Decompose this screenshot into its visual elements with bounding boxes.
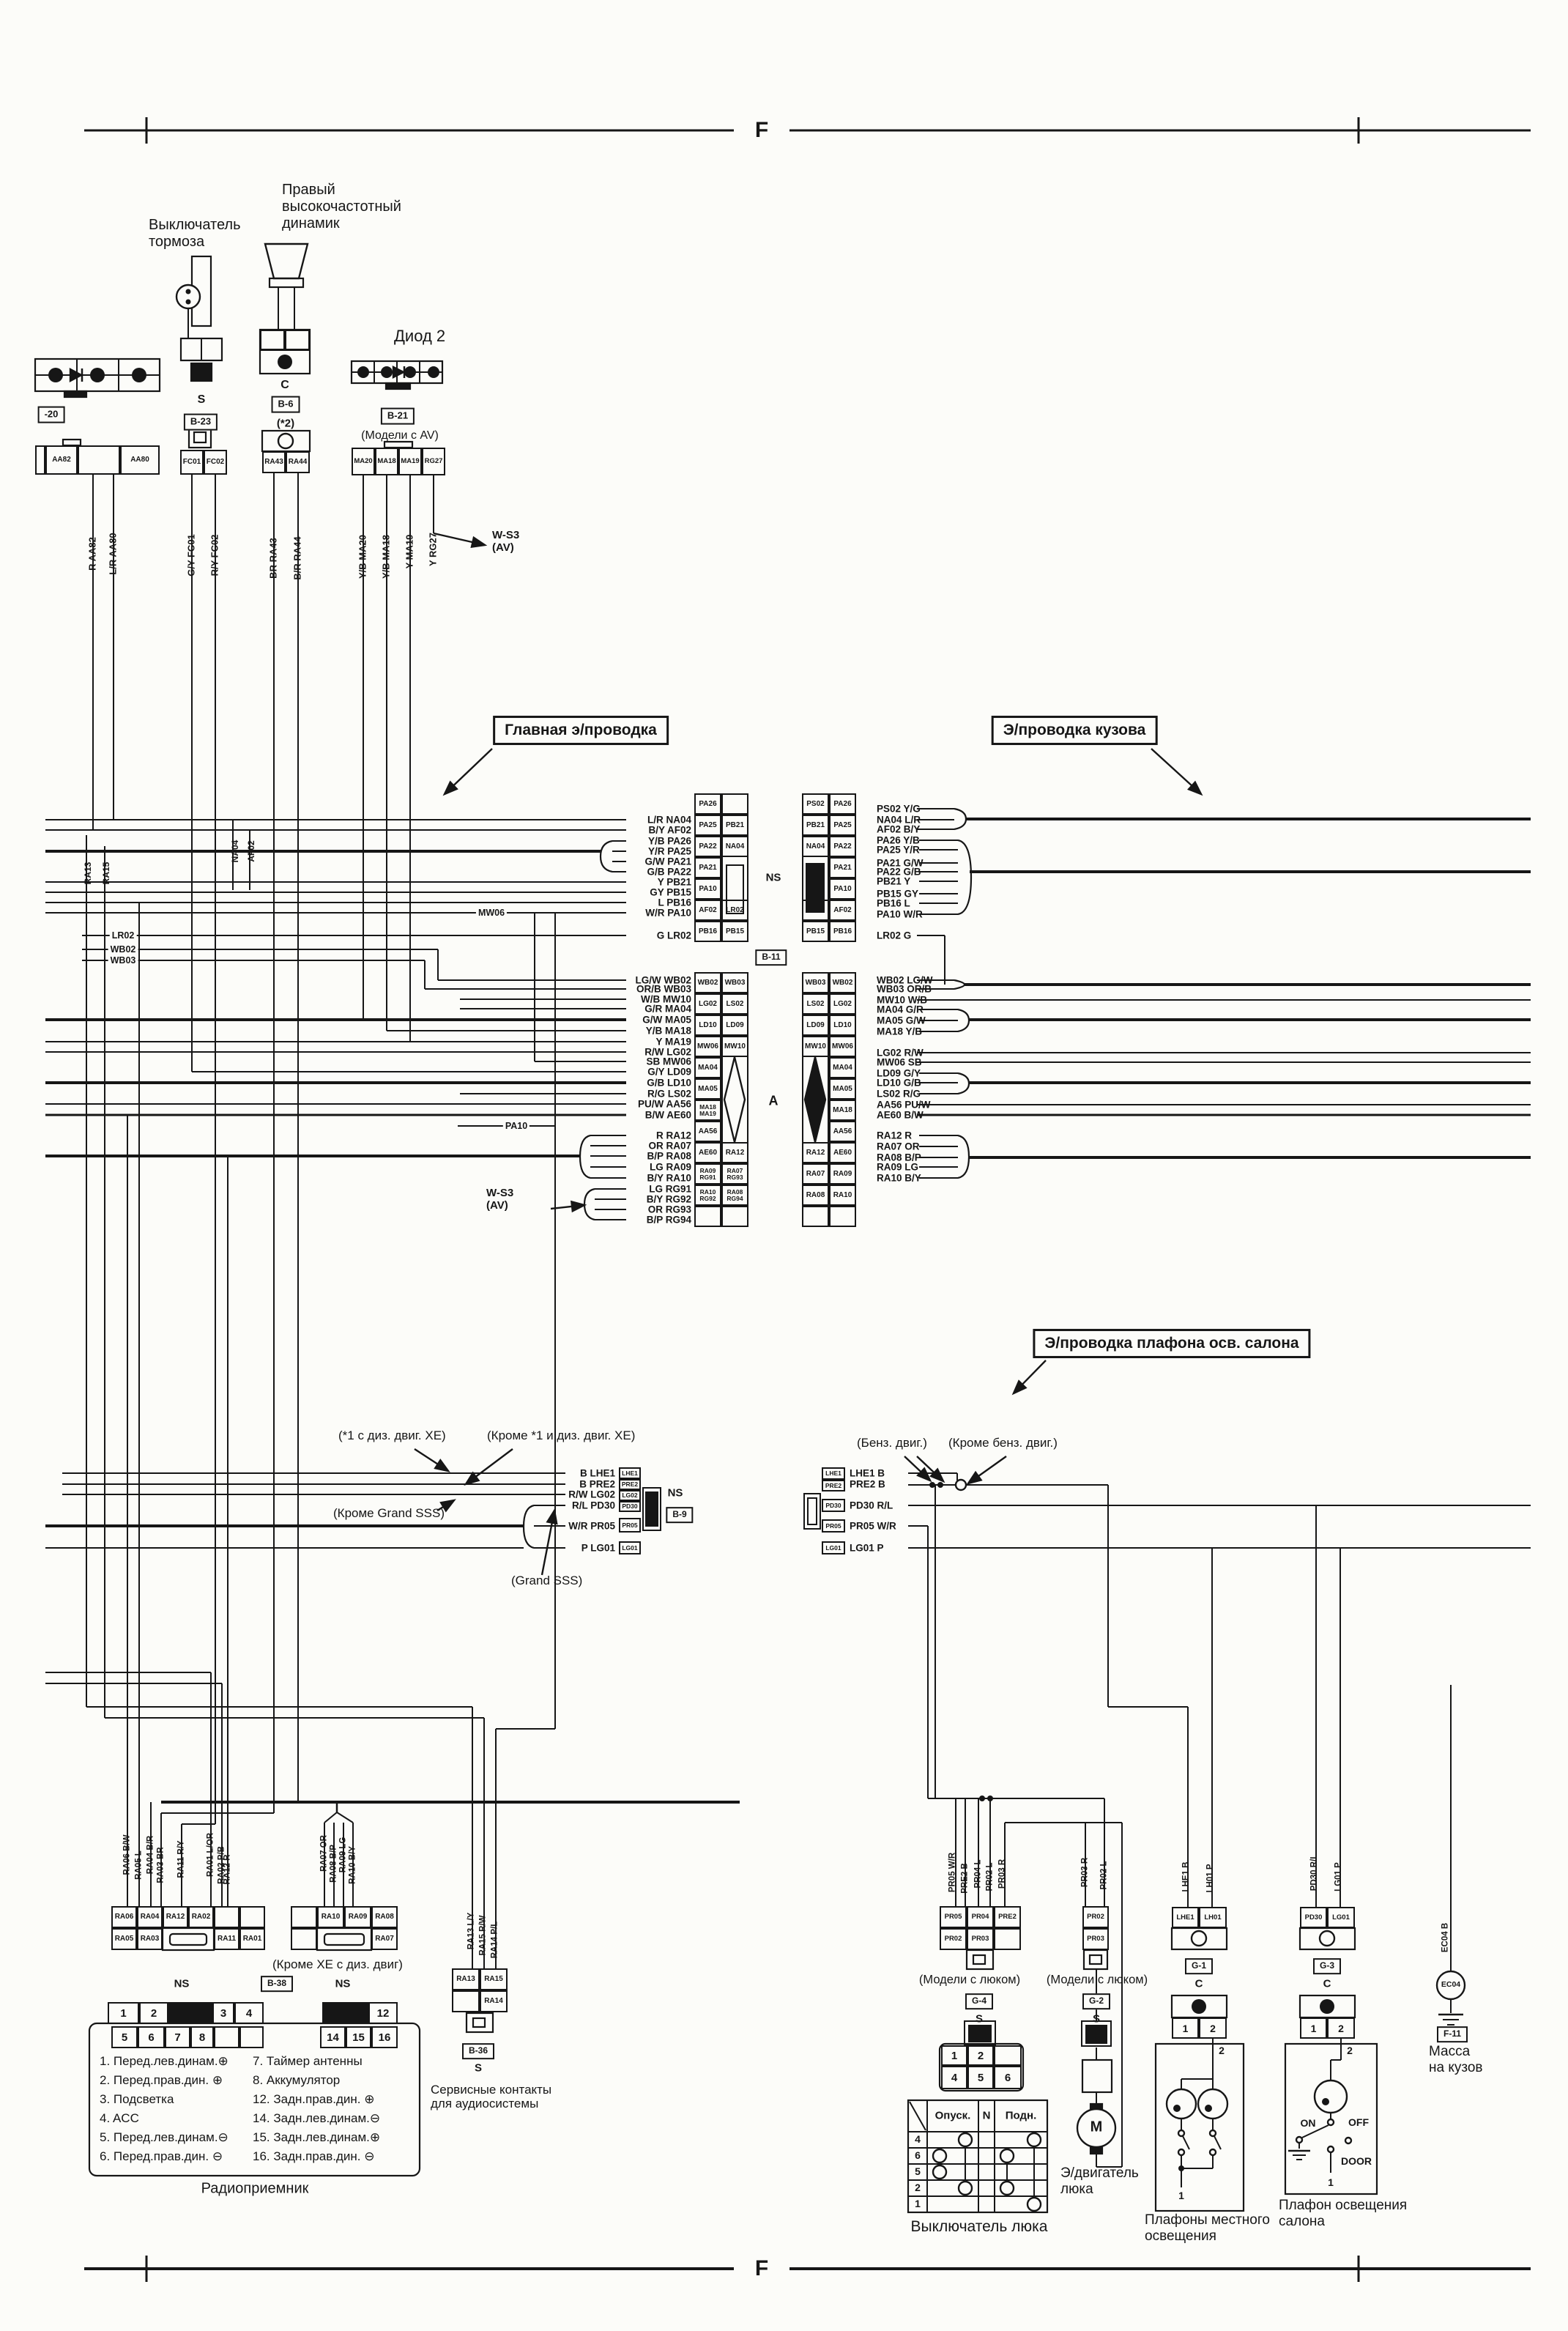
cell-main-grid_left_mid-0-1: WB03 (721, 972, 748, 993)
label-main-right_mid-1: WB03 OR/B (877, 983, 932, 994)
label-map_lamps-id: G-1 (1185, 1958, 1213, 1974)
cell-top-brake_switch-cells-1: FC02 (204, 450, 227, 475)
label-dome-left_list-5: P LG01 (410, 1542, 615, 1553)
cell-radio-conn_left_r1-1: RA04 (137, 1906, 163, 1928)
label-main-g_lr02: G LR02 (486, 930, 691, 941)
cell-radio-pins_r2-3: 8 (190, 2026, 214, 2048)
label-main-edge_labels-2: WB03 (108, 955, 138, 966)
cell-radio-conn_left_r1-5 (239, 1906, 265, 1928)
cell-main-grid_left_mid-0-0: WB02 (694, 972, 721, 993)
cell-dome-left_strip-5: LG01 (619, 1541, 641, 1554)
cell-blank (452, 1990, 480, 2012)
label-main-right_mid-12: AE60 B/W (877, 1109, 924, 1120)
label-radio-wires_left-0: RA06 B/W (122, 1835, 132, 1875)
label-map_lamps-c: C (1195, 1977, 1203, 1990)
cell-main-grid_right_top-0-0: PS02 (802, 793, 829, 815)
cell-dome-left_strip-2: LG02 (619, 1490, 641, 1501)
cell-main-grid_left_top-1-0: PA25 (694, 815, 721, 836)
wiring-diagram-page: Выключатель тормозаSB-23Правый высокочас… (0, 0, 1568, 2331)
label-main-ws3: W-S3 (AV) (486, 1187, 513, 1212)
label-radio-legend_col2-1: 8. Аккумулятор (253, 2073, 340, 2087)
label-radio-legend_col1-4: 5. Перед.лев.динам.⊖ (100, 2130, 228, 2144)
label-main-edge_labels-1: WB02 (108, 944, 138, 955)
label-top-brake_switch-pin: S (198, 393, 206, 407)
cell-main-grid_right_mid-1-0: LS02 (802, 993, 829, 1015)
connector-key-filled (806, 863, 825, 913)
label-main-left_mid-10: G/B LD10 (486, 1077, 691, 1088)
label-map_lamps-wires-0: LHE1 B (1181, 1862, 1191, 1892)
cell-radio-conn_left_r1-4 (214, 1906, 239, 1928)
label-map_lamps-wires-1: LH01 P (1205, 1864, 1215, 1893)
label-main-ns: NS (766, 871, 781, 883)
label-dome-notes-n4: (Grand SSS) (511, 1574, 582, 1587)
cell-radio-conn_left_r2-0: RA05 (111, 1928, 137, 1950)
label-radio-wires_left-4: RA11 R/Y (177, 1840, 186, 1878)
cell-main-grid_right_top-4-1: PA10 (829, 878, 856, 900)
label-top-diode2-wires-1: Y/B MA18 (382, 535, 393, 579)
cell-top-diode2-cells-3: RG27 (422, 448, 445, 475)
label-dome_lamp-on: ON (1301, 2118, 1316, 2130)
cell-sunroof_switch-pins_r2-0: 4 (941, 2066, 967, 2089)
cell-dome-right_strip-3: PR05 (822, 1519, 845, 1533)
label-top-brake_switch-title: Выключатель тормоза (149, 217, 241, 251)
label-main-right_mid-7: MW06 SB (877, 1056, 922, 1067)
label-radio-wires_left-7: RA12 R (223, 1855, 232, 1885)
label-map_lamps-caption: Плафоны местного освещения (1145, 2212, 1270, 2244)
label-main-right_ra-3: RA09 LG (877, 1161, 918, 1172)
cell-sunroof_switch-conn_r1-0: PR05 (940, 1906, 967, 1928)
cell-radio-pins_r2b-1: 15 (346, 2026, 371, 2048)
label-main-riser_labels-1: AF02 (247, 840, 257, 861)
label-main-left_rg-3: B/P RG94 (486, 1214, 691, 1225)
label-main-right_ra-0: RA12 R (877, 1130, 912, 1141)
label-main-right_ra-1: RA07 OR (877, 1141, 920, 1152)
cell-sunroof_switch-conn_r2-0: PR02 (940, 1928, 967, 1950)
label-radio-legend_col2-3: 14. Задн.лев.динам.⊖ (253, 2111, 380, 2125)
cell-main-grid_right_top-1-1: PA25 (829, 815, 856, 836)
cell-main-grid_left_mid-6-0: MA18 MA19 (694, 1100, 721, 1121)
cell-main-grid_left_mid-7-0: AA56 (694, 1121, 721, 1142)
cell-dome_lamp-pins-0: 1 (1300, 2017, 1327, 2039)
label-main-right_top-7: PB21 Y (877, 875, 910, 886)
label-sunroof_motor-id: G-2 (1082, 1993, 1110, 2009)
label-sunroof_motor-caption: Э/двигатель люка (1060, 2165, 1139, 2197)
cell-main-grid_right_top-2-1: PA22 (829, 836, 856, 857)
cell-main-grid_right_top-2-0: NA04 (802, 836, 829, 857)
cell-radio-conn_right_r2-0: RA07 (371, 1928, 398, 1950)
label-top-tweeter-wires-0: BR RA43 (269, 538, 280, 579)
cell-main-grid_right_mid-0-1: WB02 (829, 972, 856, 993)
cell-radio-conn_right_r1-1: RA09 (344, 1906, 371, 1928)
label-main-right_top-10: PA10 W/R (877, 908, 923, 919)
cell-sunroof_switch-conn_r1-1: PR04 (967, 1906, 994, 1928)
cell-main-grid_right_mid-1-1: LG02 (829, 993, 856, 1015)
label-dome-ns: NS (668, 1486, 683, 1499)
cell-main-grid_right_mid-4-0 (802, 1057, 829, 1078)
cell-main-grid_left_mid-2-0: LD10 (694, 1015, 721, 1036)
cell-main-grid_right_top-3-1: PA21 (829, 857, 856, 878)
cell-dome_lamp-cells-0: PD30 (1300, 1907, 1327, 1928)
cell-main-grid_right_top-6-1: PB16 (829, 921, 856, 942)
connector-key-filled (968, 2025, 992, 2042)
label-radio-caption: Радиоприемник (201, 2181, 309, 2198)
label-sunroof_switch-tbl_rows-1: 6 (915, 2150, 921, 2162)
label-dome_lamp-caption: Плафон освещения салона (1279, 2198, 1407, 2229)
label-main-edge_labels-0: LR02 (110, 930, 137, 941)
cell-main-grid_right_top-0-1: PA26 (829, 793, 856, 815)
label-top-edge-conn_id: -20 (38, 407, 65, 423)
label-main-right_mid-9: LD10 G/B (877, 1077, 921, 1088)
cell-blank (994, 2045, 1022, 2066)
connector-key-outline (726, 864, 744, 914)
label-main-right_mid-5: MA18 Y/B (877, 1026, 922, 1037)
label-map_lamps-p2: 2 (1219, 2045, 1225, 2057)
label-top-edge-wires-0: R AA82 (88, 537, 99, 571)
label-main-right_mid-3: MA04 G/R (877, 1004, 924, 1015)
label-radio-legend_col1-0: 1. Перед.лев.динам.⊕ (100, 2054, 228, 2068)
cell-sunroof_switch-pins_r2-1: 5 (967, 2066, 994, 2089)
cell-blank (214, 2026, 239, 2048)
cell-radio-conn_left_r1-2: RA12 (163, 1906, 188, 1928)
cell-main-grid_right_mid-10-1: RA10 (829, 1185, 856, 1206)
cell-radio-pins_r2-1: 6 (138, 2026, 165, 2048)
label-radio-wires_right-0: RA07 OR (319, 1835, 329, 1872)
cell-blank (291, 1906, 317, 1928)
connector-key-filled (1085, 2025, 1107, 2044)
label-radio-legend_col2-0: 7. Таймер антенны (253, 2054, 363, 2068)
cell-main-grid_left_mid-1-0: LG02 (694, 993, 721, 1015)
cell-main-grid_left_top-6-1: PB15 (721, 921, 748, 942)
cell-map_lamps-pins-0: 1 (1172, 2017, 1199, 2039)
cell-main-grid_right_mid-7-1: AA56 (829, 1121, 856, 1142)
cell-sunroof_switch-conn_r2-1: PR03 (967, 1928, 994, 1950)
cell-radio-pins_r1-2: 3 (212, 2002, 234, 2024)
label-radio-legend_col2-5: 16. Задн.прав.дин. ⊖ (253, 2149, 374, 2163)
cell-main-grid_left_mid-3-1: MW10 (721, 1036, 748, 1057)
label-radio-wires_left-3: RA03 BR (156, 1847, 166, 1883)
label-radio-wires_right-1: RA08 B/P (329, 1845, 338, 1883)
label-radio-legend_col2-2: 12. Задн.прав.дин. ⊕ (253, 2092, 374, 2106)
label-sunroof_motor-wires-0: PR03 R (1080, 1858, 1090, 1887)
label-dome-notes-n6: (Кроме бенз. двиг.) (948, 1436, 1058, 1450)
label-main-left_ra-3: LG RA09 (486, 1161, 691, 1172)
cell-blank (721, 1206, 748, 1227)
cell-service-cells_r1-1: RA15 (480, 1968, 508, 1990)
label-main-riser_labels-2: RA13 (83, 862, 94, 885)
label-sunroof_switch-caption: Выключатель люка (911, 2218, 1048, 2236)
cell-sunroof_switch-pins_r1-1: 2 (967, 2045, 994, 2066)
label-top-diode2-note: (Модели с AV) (361, 429, 439, 442)
cell-top-diode2-cells-0: MA20 (352, 448, 375, 475)
cell-top-edge-cells-0: AA82 (45, 445, 78, 475)
label-main-left_ra-4: B/Y RA10 (486, 1172, 691, 1183)
label-main-riser_labels-0: NA04 (231, 840, 241, 863)
cell-main-grid_right_top-6-0: PB15 (802, 921, 829, 942)
cell-dome-right_strip-0: LHE1 (822, 1467, 845, 1480)
label-main-left_mid-12: PU/W AA56 (486, 1098, 691, 1109)
cell-main-grid_right_top-5-1: AF02 (829, 900, 856, 921)
label-radio-legend_col1-1: 2. Перед.прав.дин. ⊕ (100, 2073, 223, 2087)
cell-main-grid_left_mid-7-1 (721, 1121, 748, 1142)
cell-radio-conn_right_r1-0: RA10 (317, 1906, 344, 1928)
label-dome-b9: B-9 (666, 1507, 693, 1523)
label-ground-id: F-11 (1437, 2026, 1468, 2042)
label-top-diode2-wires-2: Y MA19 (405, 535, 416, 569)
label-main-left_top-9: W/R PA10 (486, 907, 691, 918)
cell-main-grid_right_mid-3-1: MW06 (829, 1036, 856, 1057)
cell-main-grid_right_top-1-0: PB21 (802, 815, 829, 836)
cell-radio-conn_left_r2-1: RA03 (137, 1928, 163, 1950)
cell-top-edge-cells-2: AA80 (120, 445, 160, 475)
cell-radio-pins_r1-3: 4 (234, 2002, 264, 2024)
cell-main-grid_left_mid-5-1 (721, 1078, 748, 1100)
label-ground-wire: EC04 B (1441, 1923, 1450, 1952)
cell-main-grid_left_mid-10-1: RA08 RG94 (721, 1185, 748, 1206)
cell-main-grid_right_mid-3-0: MW10 (802, 1036, 829, 1057)
label-radio-wires_left-1: RA05 L (134, 1850, 144, 1880)
label-top-diode2-wires-0: Y/B MA20 (358, 535, 369, 579)
label-top-brake_switch-wires-1: R/Y FC02 (210, 535, 221, 577)
label-sunroof_switch-tbl_rows-0: 4 (915, 2134, 921, 2146)
cell-sunroof_motor-cells-0: PR02 (1082, 1906, 1109, 1928)
label-sections-body: Э/проводка кузова (992, 716, 1158, 745)
label-sunroof_switch-wires-1: PRE2 B (960, 1863, 970, 1894)
cell-radio-conn_left_r1-0: RA06 (111, 1906, 137, 1928)
label-dome-right_list-4: LG01 P (850, 1542, 884, 1553)
cell-radio-pins_r1-1: 2 (139, 2002, 168, 2024)
cell-main-grid_right_mid-2-0: LD09 (802, 1015, 829, 1036)
cell-main-grid_left_top-6-0: PB16 (694, 921, 721, 942)
cell-blank (829, 1206, 856, 1227)
label-main-left_mid-9: G/Y LD09 (486, 1066, 691, 1077)
cell-service-cells_r1-0: RA13 (452, 1968, 480, 1990)
cell-main-grid_left_mid-1-1: LS02 (721, 993, 748, 1015)
label-sunroof_switch-tbl_rows-4: 1 (915, 2198, 921, 2210)
label-dome_lamp-p2: 2 (1347, 2045, 1353, 2057)
label-top-tweeter-wires-1: B/R RA44 (293, 536, 304, 579)
connector-key-outline (807, 1497, 817, 1525)
label-dome-left_list-0: B LHE1 (410, 1467, 615, 1478)
label-sunroof_switch-wires-2: PR04 L (973, 1860, 983, 1889)
cell-top-tweeter-cells-0: RA43 (262, 451, 286, 473)
label-dome-right_list-0: LHE1 B (850, 1467, 885, 1478)
cell-blank (285, 330, 310, 350)
cell-radio-pins_r2-0: 5 (111, 2026, 138, 2048)
cell-dome-right_strip-1: PRE2 (822, 1480, 845, 1491)
label-sunroof_switch-tbl_heads-1: N (983, 2109, 991, 2121)
cell-radio-pins_r2-2: 7 (165, 2026, 190, 2048)
cell-main-grid_left_mid-6-1 (721, 1100, 748, 1121)
label-radio-wires_right-2: RA09 LG (338, 1837, 348, 1873)
connector-key-filled (645, 1491, 658, 1527)
label-dome-notes-n1: (*1 с диз. двиг. XE) (338, 1428, 446, 1442)
label-main-left_mid-5: Y/B MA18 (486, 1025, 691, 1036)
label-main-right_top-11: LR02 G (877, 930, 911, 941)
label-main-left_mid-4: G/W MA05 (486, 1014, 691, 1025)
label-dome-right_list-1: PRE2 B (850, 1478, 885, 1489)
cell-dome-left_strip-3: PD30 (619, 1501, 641, 1512)
label-sunroof_switch-id: G-4 (965, 1993, 993, 2009)
label-main-left_top-1: B/Y AF02 (486, 824, 691, 835)
cell-main-grid_right_mid-6-1: MA18 (829, 1100, 856, 1121)
connector-key-filled (168, 2002, 212, 2024)
label-sunroof_motor-note: (Модели с люком) (1047, 1974, 1148, 1987)
cell-radio-pins_r2b-2: 16 (371, 2026, 398, 2048)
label-main-right_mid-10: LS02 R/G (877, 1088, 921, 1099)
cell-dome-left_strip-0: LHE1 (619, 1467, 641, 1479)
cell-radio-conn_left_r1-3: RA02 (188, 1906, 214, 1928)
label-top-tweeter-conn_id: B-6 (272, 396, 300, 413)
label-dome_lamp-p1: 1 (1328, 2177, 1334, 2189)
label-sunroof_switch-wires-3: PR02 L (985, 1863, 995, 1891)
label-radio-legend_col1-5: 6. Перед.прав.дин. ⊖ (100, 2149, 223, 2163)
cell-main-grid_left_mid-9-0: RA09 RG91 (694, 1163, 721, 1185)
cell-radio-conn_right_r1-2: RA08 (371, 1906, 398, 1928)
label-radio-wires_left-5: RA01 L/OR (206, 1833, 215, 1877)
cell-main-grid_left_mid-8-0: AE60 (694, 1142, 721, 1163)
label-radio-ns2: NS (335, 1977, 351, 1990)
cell-dome_lamp-pins-1: 2 (1327, 2017, 1355, 2039)
label-main-right_top-4: PA25 Y/R (877, 844, 920, 855)
label-service-caption: Сервисные контакты для аудиосистемы (431, 2083, 551, 2111)
label-sunroof_switch-wires-0: PR05 W/R (948, 1853, 957, 1892)
label-sunroof_switch-tbl_rows-2: 5 (915, 2166, 921, 2178)
cell-top-diode2-cells-1: MA18 (375, 448, 398, 475)
label-service-wires-2: RA14 P/L (490, 1921, 499, 1959)
label-sections-dome: Э/проводка плафона осв. салона (1033, 1329, 1310, 1358)
cell-radio-conn_left_r2-3: RA01 (239, 1928, 265, 1950)
cell-main-grid_left_mid-9-1: RA07 RG93 (721, 1163, 748, 1185)
label-top-tweeter-note: (*2) (277, 417, 294, 429)
label-dome-left_list-2: R/W LG02 (410, 1489, 615, 1500)
label-dome-right_list-2: PD30 R/L (850, 1500, 893, 1511)
cell-dome-left_strip-1: PRE2 (619, 1479, 641, 1490)
cell-main-grid_left_top-2-1: NA04 (721, 836, 748, 857)
cell-main-grid_right_mid-9-1: RA09 (829, 1163, 856, 1185)
cell-main-grid_right_mid-8-1: AE60 (829, 1142, 856, 1163)
cell-main-grid_left_top-2-0: PA22 (694, 836, 721, 857)
label-radio-wires_right-3: RA10 B/Y (348, 1846, 357, 1884)
cell-top-brake_switch-cells-0: FC01 (180, 450, 204, 475)
cell-radio-conn_left_r2-2: RA11 (214, 1928, 239, 1950)
label-top-tweeter-pin: C (280, 379, 289, 392)
label-main-b11: B-11 (755, 949, 787, 966)
label-page-frame_letter: F (755, 2256, 768, 2281)
cell-main-grid_right_mid-4-1: MA04 (829, 1057, 856, 1078)
cell-main-grid_left_mid-4-0: MA04 (694, 1057, 721, 1078)
label-main-right_top-2: AF02 B/Y (877, 823, 920, 834)
label-dome_lamp-c: C (1323, 1977, 1331, 1990)
label-main-left_mid-13: B/W AE60 (486, 1109, 691, 1120)
cell-main-grid_left_top-0-1 (721, 793, 748, 815)
label-dome_lamp-off: OFF (1348, 2117, 1369, 2129)
cell-top-tweeter-cells-1: RA44 (286, 451, 310, 473)
label-radio-wires_left-2: RA04 B/R (146, 1836, 155, 1874)
cell-main-grid_right_mid-7-0 (802, 1121, 829, 1142)
label-radio-note: (Кроме XE с диз. двиг) (272, 1957, 403, 1971)
label-service-b36: B-36 (462, 2043, 494, 2059)
wire-layer (0, 0, 1568, 2331)
label-top-diode2-conn_id: B-21 (381, 408, 415, 425)
cell-radio-pin12: 12 (368, 2002, 398, 2024)
label-radio-legend_col2-4: 15. Задн.лев.динам.⊕ (253, 2130, 380, 2144)
label-main-mw06: MW06 (476, 908, 507, 918)
cell-main-grid_left_top-0-0: PA26 (694, 793, 721, 815)
label-service-s: S (475, 2061, 482, 2074)
cell-map_lamps-pins-1: 2 (1199, 2017, 1227, 2039)
cell-main-grid_left_mid-3-0: MW06 (694, 1036, 721, 1057)
cell-main-grid_left_mid-8-1: RA12 (721, 1142, 748, 1163)
cell-map_lamps-cells-1: LH01 (1199, 1907, 1227, 1928)
cell-main-grid_left_mid-10-0: RA10 RG92 (694, 1185, 721, 1206)
cell-top-diode2-cells-2: MA19 (398, 448, 422, 475)
label-dome_lamp-wires-0: PD30 R/L (1309, 1854, 1319, 1891)
cell-blank (291, 1928, 317, 1950)
label-main-right_ra-4: RA10 B/Y (877, 1172, 921, 1183)
label-map_lamps-p1: 1 (1178, 2190, 1184, 2202)
cell-main-grid_left_mid-4-1 (721, 1057, 748, 1078)
label-sunroof_switch-note: (Модели с люком) (919, 1974, 1020, 1987)
label-main-riser_labels-3: RA15 (102, 862, 112, 885)
cell-dome_lamp-cells-1: LG01 (1327, 1907, 1355, 1928)
label-sections-main: Главная э/проводка (493, 716, 669, 745)
label-dome_lamp-id: G-3 (1313, 1958, 1341, 1974)
cell-main-grid_right_mid-5-1: MA05 (829, 1078, 856, 1100)
cell-main-grid_left_top-3-0: PA21 (694, 857, 721, 878)
label-radio-legend_col1-2: 3. Подсветка (100, 2092, 174, 2106)
label-top-diode2-wires-3: Y RG27 (428, 533, 439, 566)
cell-blank (694, 1206, 721, 1227)
cell-dome-left_strip-4: PR05 (619, 1518, 641, 1533)
label-top-diode2-ws3: W-S3 (AV) (492, 529, 519, 554)
label-main-right_mid-4: MA05 G/W (877, 1015, 926, 1026)
cell-main-grid_right_mid-6-0 (802, 1100, 829, 1121)
cell-main-grid_left_top-4-0: PA10 (694, 878, 721, 900)
label-ground-caption: Масса на кузов (1429, 2044, 1483, 2075)
label-dome-right_list-3: PR05 W/R (850, 1520, 896, 1531)
cell-main-grid_left_mid-5-0: MA05 (694, 1078, 721, 1100)
label-dome-left_list-4: W/R PR05 (410, 1520, 615, 1531)
label-dome_lamp-wires-1: LG01 P (1334, 1862, 1343, 1891)
label-sunroof_switch-tbl_heads-2: Подн. (1006, 2109, 1037, 2121)
cell-main-grid_right_mid-10-0: RA08 (802, 1185, 829, 1206)
label-sunroof_switch-tbl_rows-3: 2 (915, 2182, 921, 2194)
label-top-diode2-title: Диод 2 (394, 327, 445, 345)
cell-sunroof_switch-pins_r2-2: 6 (994, 2066, 1022, 2089)
label-sunroof_switch-tbl_heads-0: Опуск. (935, 2109, 971, 2121)
cell-main-grid_right_mid-8-0: RA12 (802, 1142, 829, 1163)
label-top-brake_switch-wires-0: G/Y FC01 (187, 534, 198, 577)
label-ground-circle: EC04 (1441, 1981, 1460, 1990)
cell-service-cell_r2: RA14 (480, 1990, 508, 2012)
label-dome-left_list-3: R/L PD30 (410, 1500, 615, 1511)
cell-main-grid_right_mid-5-0 (802, 1078, 829, 1100)
connector-key-filled (322, 2002, 368, 2024)
cell-main-grid_left_mid-2-1: LD09 (721, 1015, 748, 1036)
cell-main-grid_right_mid-9-0: RA07 (802, 1163, 829, 1185)
label-main-left_ra-2: B/P RA08 (486, 1150, 691, 1161)
cell-dome-right_strip-4: LG01 (822, 1541, 845, 1554)
label-main-a: A (769, 1094, 779, 1109)
cell-sunroof_switch-pins_r1-0: 1 (941, 2045, 967, 2066)
cell-radio-pins_r1-0: 1 (108, 2002, 139, 2024)
label-main-left_mid-3: G/R MA04 (486, 1003, 691, 1014)
label-radio-ns1: NS (174, 1977, 190, 1990)
cell-blank (78, 445, 120, 475)
label-dome-notes-n2: (Кроме *1 и диз. двиг. XE) (487, 1428, 635, 1442)
label-page-frame_letter: F (755, 118, 768, 143)
cell-blank (260, 330, 285, 350)
